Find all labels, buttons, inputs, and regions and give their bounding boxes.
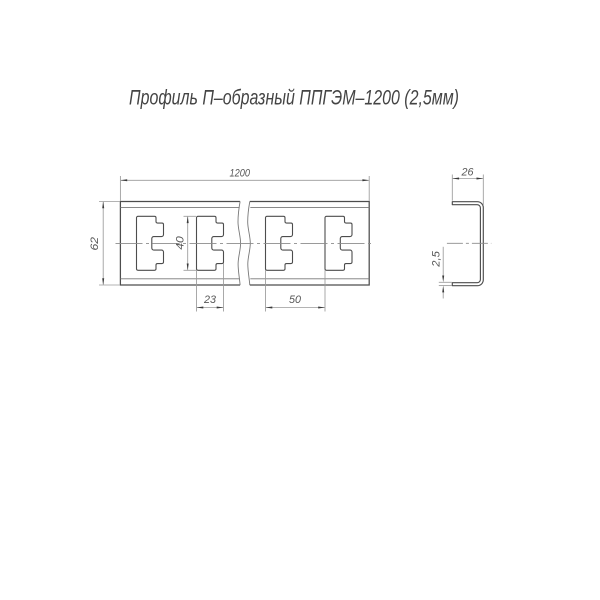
svg-text:2,5: 2,5 [430,250,442,267]
svg-text:23: 23 [203,294,217,306]
svg-text:Профиль П–образный ППГЭМ–1200: Профиль П–образный ППГЭМ–1200 (2,5мм) [129,87,459,110]
svg-text:40: 40 [174,235,186,249]
svg-text:62: 62 [89,237,101,251]
svg-text:50: 50 [289,294,302,306]
svg-text:1200: 1200 [230,168,251,180]
svg-text:26: 26 [461,167,475,179]
